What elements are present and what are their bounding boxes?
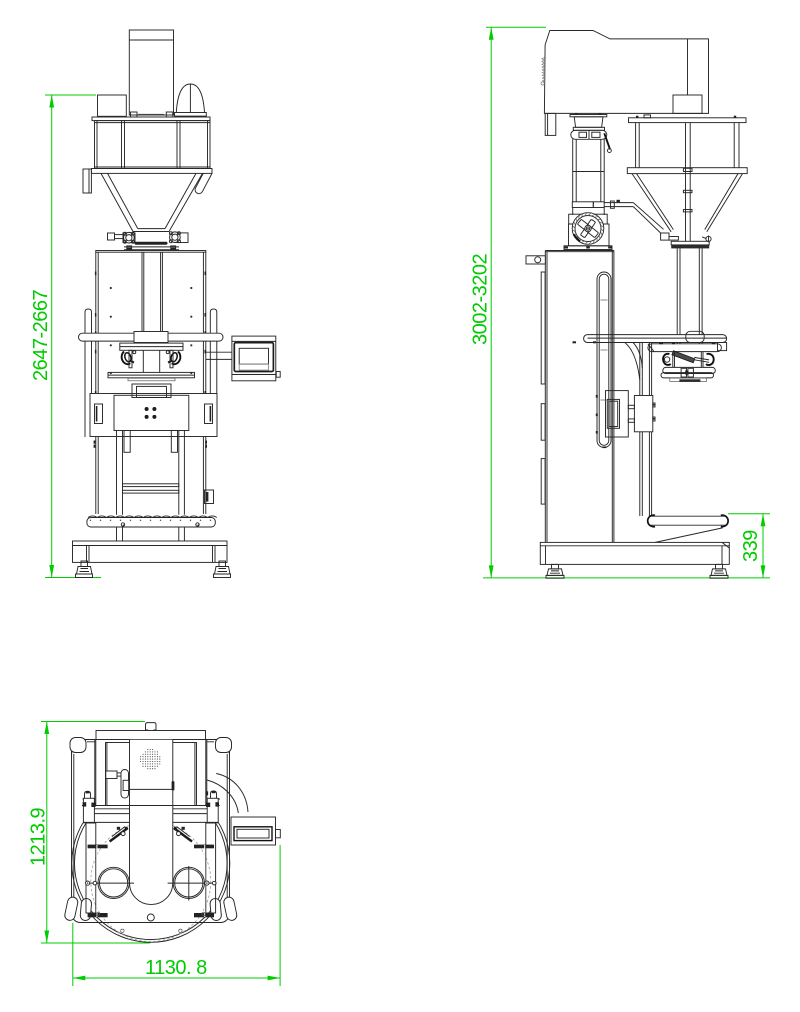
svg-text:1130. 8: 1130. 8 bbox=[145, 957, 207, 979]
svg-text:3002-3202: 3002-3202 bbox=[470, 253, 492, 345]
svg-text:2647-2667: 2647-2667 bbox=[30, 289, 52, 381]
svg-text:339: 339 bbox=[740, 530, 762, 562]
svg-text:1213.9: 1213.9 bbox=[28, 807, 50, 866]
